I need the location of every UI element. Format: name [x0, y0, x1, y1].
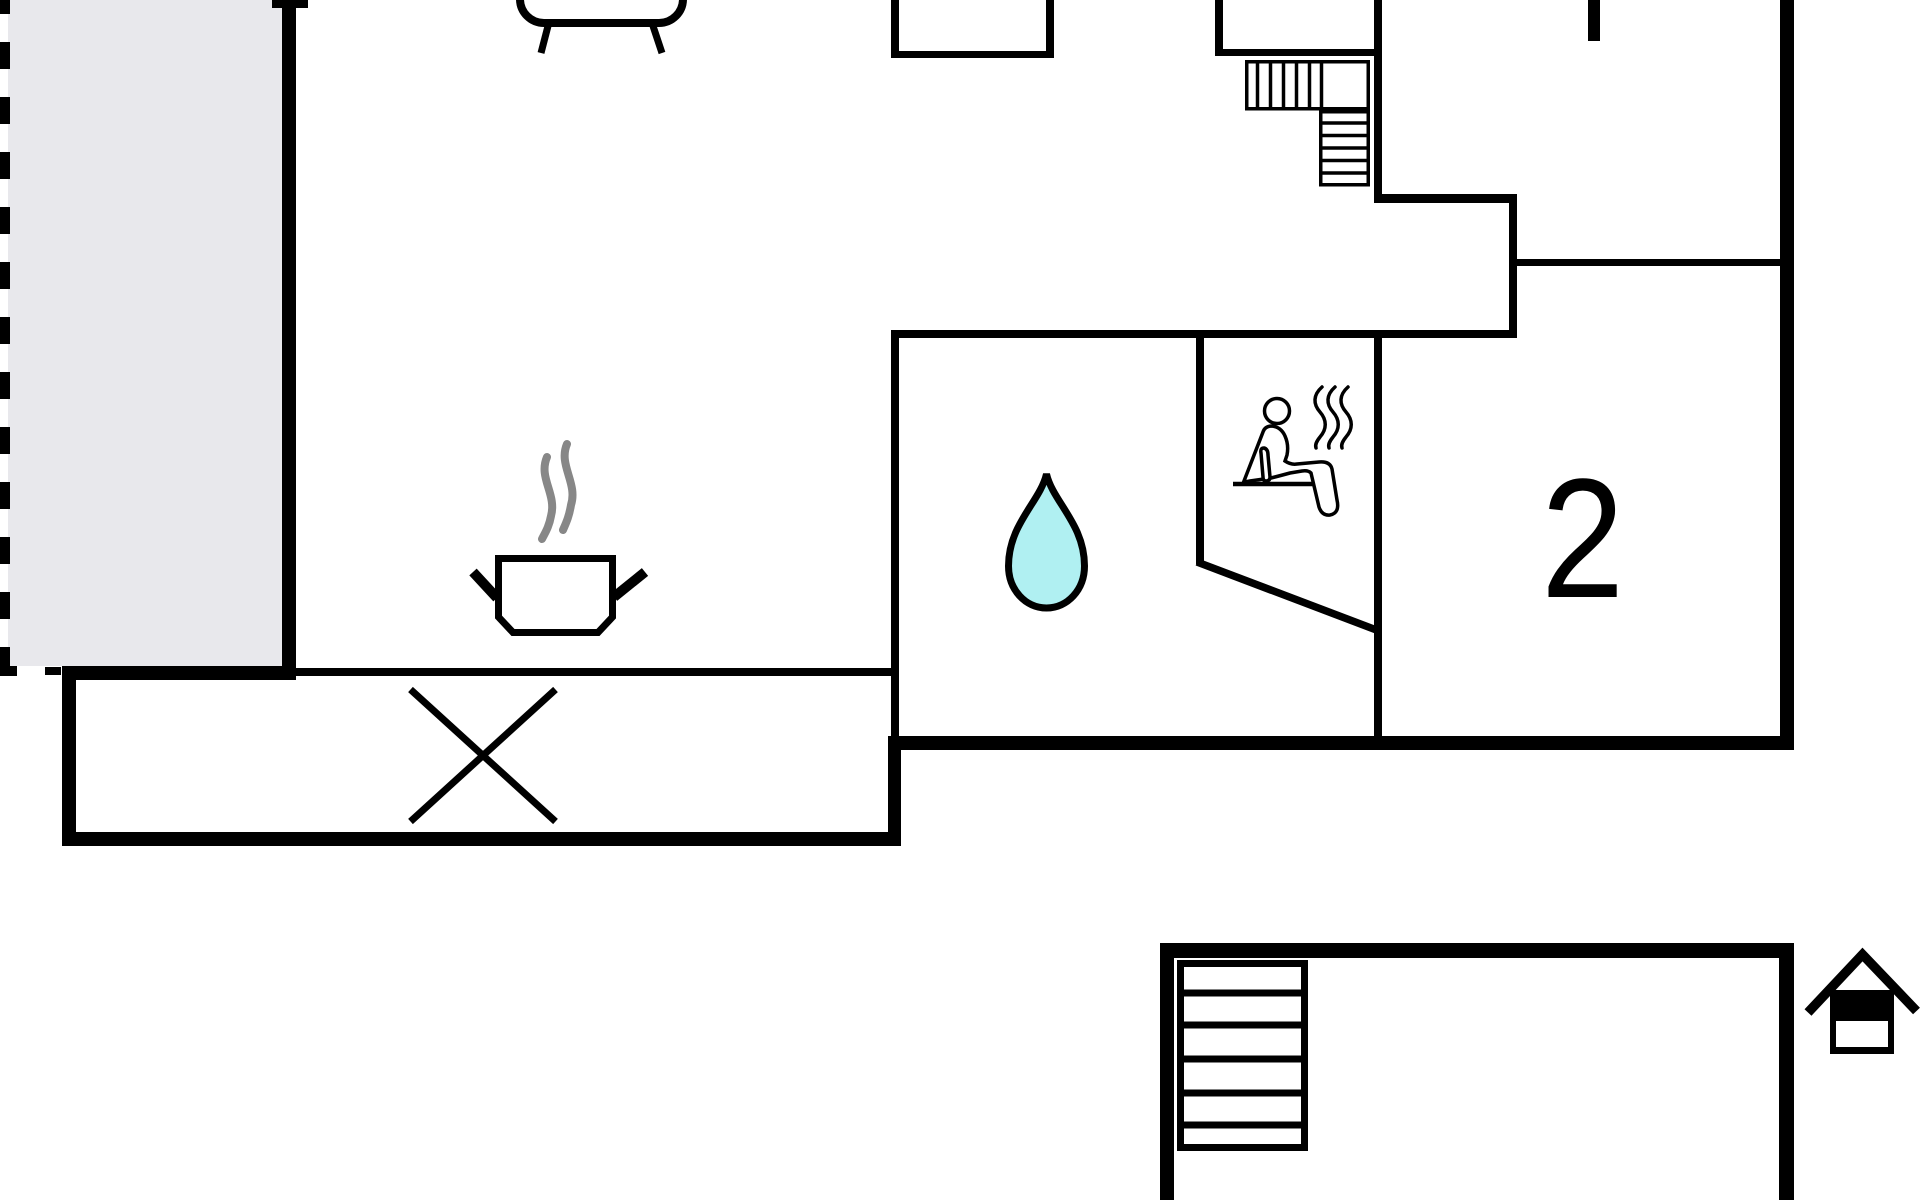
- svg-text:2: 2: [1541, 443, 1624, 633]
